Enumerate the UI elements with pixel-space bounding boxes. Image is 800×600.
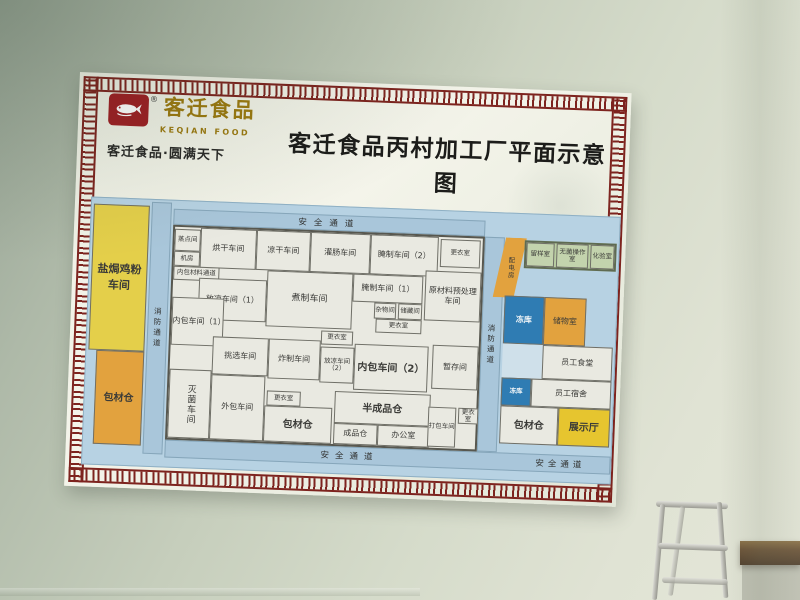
room-storage-room-small: 储藏间 — [398, 303, 423, 320]
room-changing-room: 更衣室 — [321, 330, 354, 345]
corridor-label: 安全通道 — [535, 457, 585, 471]
corridor-label: 安全通道 — [320, 449, 378, 463]
rusty-plank — [740, 541, 800, 565]
room-sausage-filling-workshop: 灌肠车间 — [309, 232, 370, 274]
room-cooling-workshop-2: 放凉车间（2） — [319, 346, 354, 383]
room-inner-packing-workshop-2: 内包车间（2） — [353, 344, 429, 393]
room-frying-workshop: 炸制车间 — [267, 338, 320, 380]
wall-photo: ® 客迁食品 KEQIAN FOOD 客迁食品·圆满天下 客迁食品丙村加工厂平面… — [0, 0, 800, 600]
room-freezer-1: 冻库 — [503, 295, 545, 345]
room-semi-finished-warehouse: 半成品仓 — [334, 391, 431, 427]
room-sterile-operation-room: 无菌操作室 — [556, 243, 589, 268]
plank-shadow — [742, 565, 800, 600]
room-exhibition-hall: 展示厅 — [557, 408, 610, 448]
brand-name-zh: 客迁食品 — [163, 95, 256, 122]
registered-mark: ® — [150, 95, 158, 104]
room-drying-workshop: 烘干车间 — [200, 228, 257, 270]
room-temporary-storage-room: 暂存间 — [431, 345, 479, 391]
plan-title: 客迁食品丙村加工厂平面示意图 — [276, 124, 618, 205]
room-changing-room: 更衣室 — [375, 319, 422, 335]
room-steaming-room: 蒸点间 — [174, 229, 201, 252]
room-packaging-warehouse-left: 包材仓 — [93, 350, 145, 446]
room-staff-canteen: 员工食堂 — [542, 345, 613, 382]
room-sample-retention-room: 留样室 — [526, 242, 555, 267]
room-changing-room: 更衣室 — [458, 408, 479, 425]
room-laboratory: 化验室 — [590, 245, 615, 270]
room-sterilization-workshop: 灭菌车间 — [167, 369, 212, 440]
room-packing-workshop: 打包车间 — [427, 407, 457, 448]
fish-icon — [108, 93, 149, 127]
room-machine-room: 机房 — [174, 251, 201, 267]
company-logo: ® 客迁食品 KEQIAN FOOD 客迁食品·圆满天下 — [107, 93, 284, 166]
room-sorting-workshop: 挑选车间 — [211, 336, 268, 376]
room-storage-room: 储物室 — [543, 297, 587, 347]
room-staff-dormitory: 员工宿舍 — [530, 379, 611, 410]
room-marinating-workshop-1: 腌制车间（1） — [352, 274, 423, 305]
unlabeled-area — [502, 343, 543, 379]
room-finished-goods-warehouse: 成品仓 — [333, 423, 378, 446]
room-packaging-warehouse-center: 包材仓 — [263, 405, 332, 444]
floor-plan-signboard: ® 客迁食品 KEQIAN FOOD 客迁食品·圆满天下 客迁食品丙村加工厂平面… — [64, 72, 631, 507]
brand-tagline: 客迁食品·圆满天下 — [107, 140, 283, 166]
room-boiling-workshop: 煮制车间 — [265, 270, 353, 329]
floor-junction — [0, 588, 420, 596]
room-packaging-warehouse-right: 包材仓 — [499, 405, 558, 445]
room-office: 办公室 — [377, 425, 430, 448]
room-outer-packing-workshop: 外包车间 — [209, 374, 265, 441]
room-salt-baked-chicken-powder-workshop: 盐焗鸡粉车间 — [88, 204, 150, 352]
room-raw-material-pretreatment-workshop: 原材料预处理车间 — [424, 270, 482, 322]
room-changing-room: 更衣室 — [266, 390, 301, 406]
room-air-dry-workshop: 凉干车间 — [256, 230, 311, 272]
floor-plan: 安全通道 安全通道 安全通道 消防通道 消防通道 盐焗鸡粉车间 包材仓 蒸点间 … — [81, 197, 621, 485]
room-changing-room: 更衣室 — [440, 239, 481, 269]
room-freezer-2: 冻库 — [501, 377, 532, 406]
room-sundries-room: 杂物间 — [374, 302, 397, 319]
